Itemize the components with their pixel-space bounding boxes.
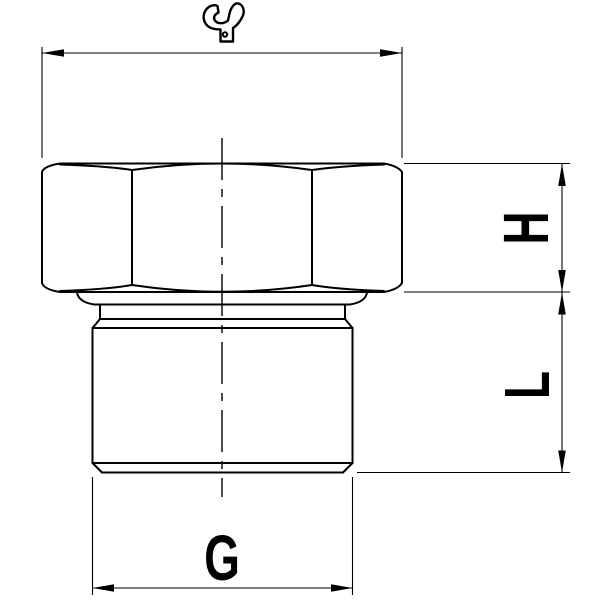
hex-chamfer-arc-bottom-left [60,285,132,291]
arrowhead-down [558,451,566,473]
hex-chamfer-arc-top-left [60,165,132,171]
hex-chamfer-arc-bottom-right [312,285,384,291]
arrowhead-left [93,584,115,592]
arrowhead-up [558,293,566,315]
arrowhead-right [380,49,402,57]
label-thread-size: G [204,523,240,594]
thread-runout-right [345,319,353,328]
technical-drawing-canvas: H L G [0,0,600,600]
label-hex-height: H [491,211,562,244]
label-thread-length: L [492,371,563,399]
dimension-L: L [357,292,570,473]
thread-runout-left [93,319,101,328]
wrench-icon [204,3,244,41]
arrowhead-right [331,584,353,592]
hex-chamfer-arc-top-right [312,165,384,171]
technical-drawing: H L G [0,0,600,600]
arrowhead-up [558,164,566,186]
dimension-H: H [404,164,570,293]
end-chamfer-left [93,463,103,473]
end-chamfer-right [343,463,353,473]
arrowhead-down [558,270,566,292]
arrowhead-left [42,49,64,57]
